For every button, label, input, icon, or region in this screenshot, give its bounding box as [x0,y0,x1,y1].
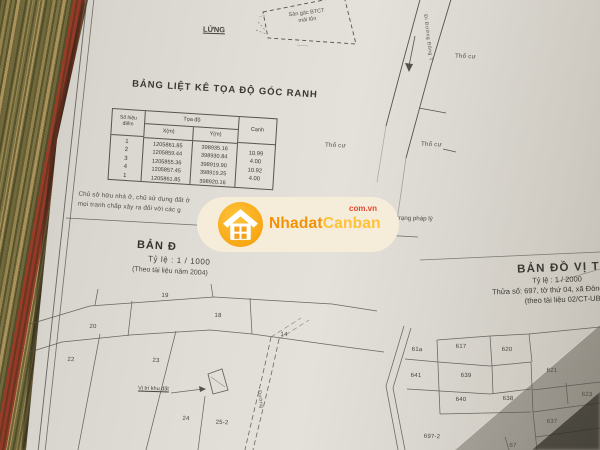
header-y: Y(m) [193,127,238,143]
plot-label: 617 [456,344,467,350]
plot-label: 20 [89,324,96,330]
brand-domain: com.vn [349,204,377,213]
plot-location-callout: Vị trí khu đất [138,385,169,392]
zoning-label: Thổ cư [421,142,442,149]
point-cell: 1 [109,171,141,181]
brand-name-first: Nhadat [269,215,323,232]
plot-label: 14 [280,332,287,338]
watermark-badge: NhadatCanban com.vn [197,197,399,252]
plot-label: 24 [182,416,189,422]
canh-cell: 4.00 [236,174,273,185]
zoning-label: Thổ cư [325,143,346,150]
column-edge: Cạnh 10.99 4.00 10.92 4.00 [235,117,276,189]
mezzanine-label: LỬNG [203,25,225,35]
zoning-label: Thổ cư [455,54,476,61]
header-point-l2: điểm [122,121,133,128]
house-icon [218,202,263,247]
plot-label: 697-2 [424,434,441,441]
header-point: Số hiệu điểm [111,109,145,137]
point-values: 1 2 3 4 1 [109,135,144,181]
plot-label: 25-2 [215,420,228,426]
brand-name-second: Canban [323,215,381,232]
right-map-header: BẢN ĐỒ VỊ TR Tỷ lệ : 1 / 2000 Thửa số: 6… [399,260,600,309]
brand-name: NhadatCanban [269,215,381,233]
plot-label: 19 [161,293,168,299]
plot-label: 639 [461,373,472,379]
plot-label: 641 [411,373,422,379]
coordinate-table: Số hiệu điểm 1 2 3 4 1 Tọa độ X(m) Y(m) … [107,108,277,190]
y-values: 398935.16 398930.84 398919.90 398919.25 … [190,141,237,188]
plot-label: 620 [502,347,513,353]
x-values: 1205861.85 1205859.44 1205855.36 1205857… [141,138,193,185]
plot-label: 23 [152,358,159,364]
column-coordinates: Tọa độ X(m) Y(m) 1205861.85 1205859.44 1… [141,111,239,187]
left-map-title: BẢN Đ [137,239,177,253]
canh-values: 10.99 4.00 10.92 4.00 [235,143,275,189]
plot-label: 61a [412,347,423,353]
plot-label: 22 [67,357,74,363]
plot-label: 640 [456,397,467,403]
header-canh: Cạnh [238,117,277,145]
photo-of-land-document: LỬNG Sàn gác BTCT mái tôn Đi Đường Đông … [0,0,600,450]
column-point: Số hiệu điểm 1 2 3 4 1 [109,109,146,181]
plot-label: 18 [214,313,221,319]
